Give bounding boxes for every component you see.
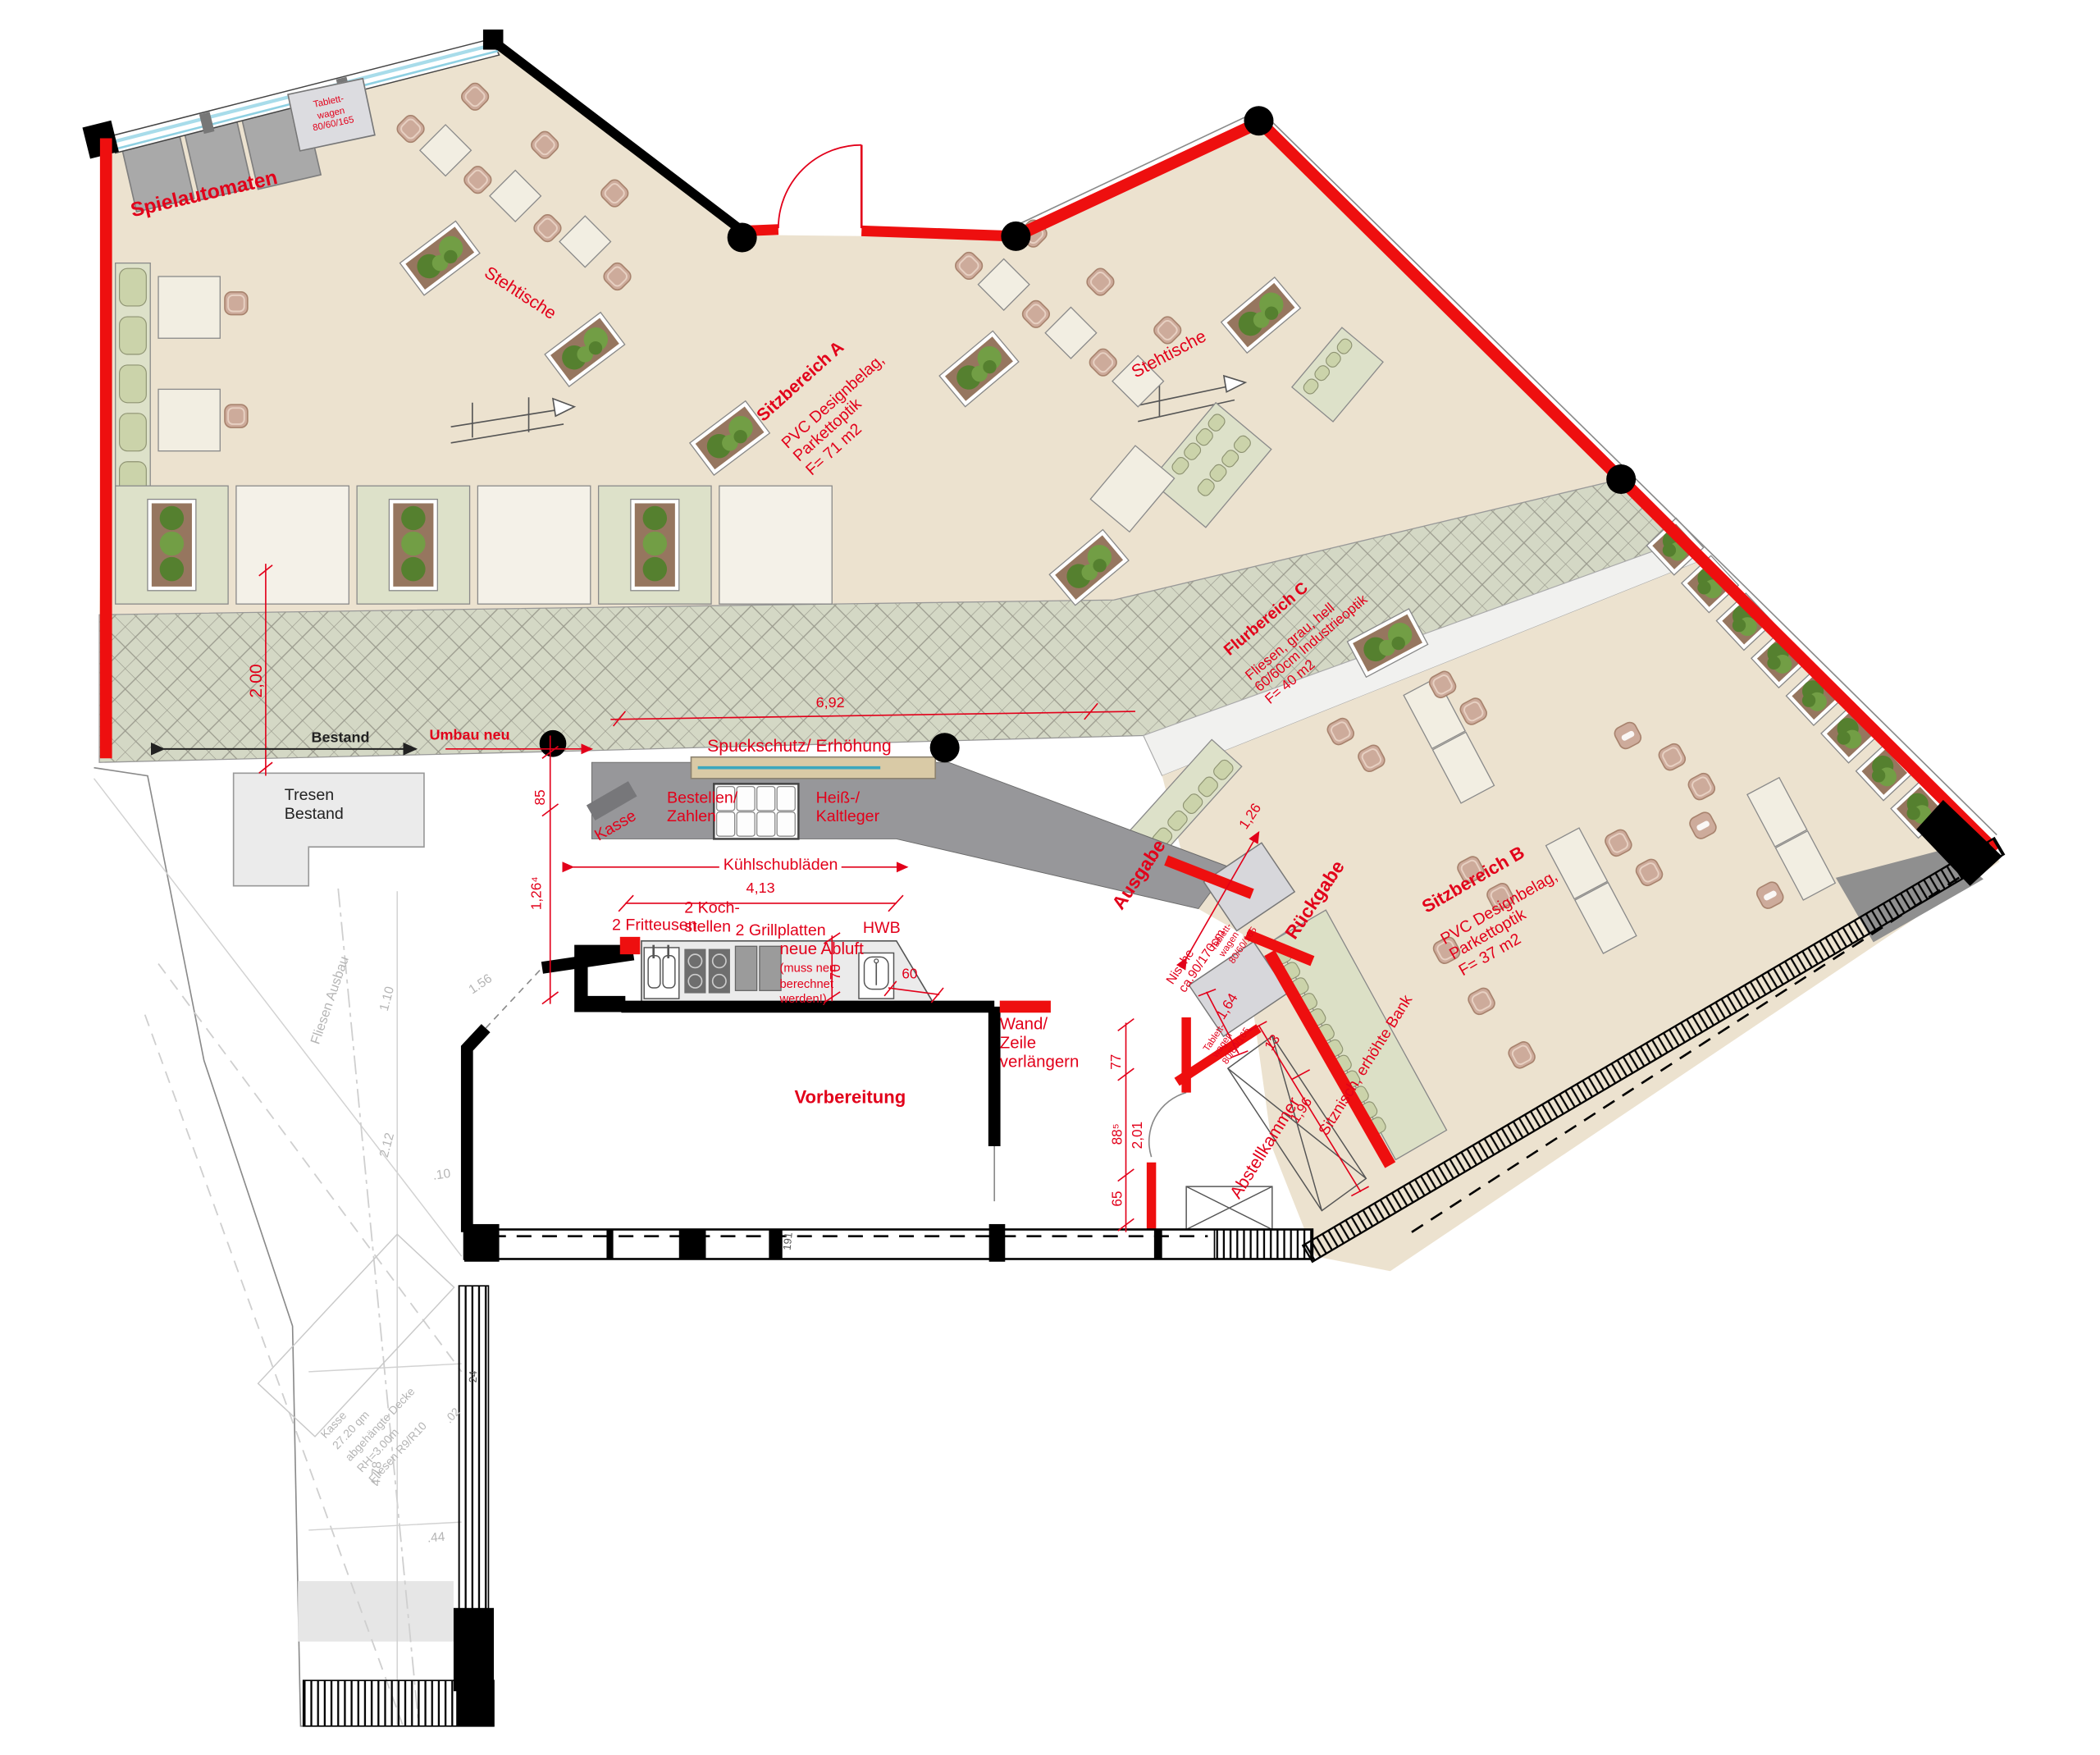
bestand-24: 24 <box>467 1370 479 1383</box>
label-vorbereitung: Vorbereitung <box>794 1087 906 1108</box>
label-spuckschutz: Spuckschutz/ Erhöhung <box>707 737 892 756</box>
dim-1-26-4: 1,26⁴ <box>530 876 546 910</box>
dim-4-13: 4,13 <box>746 880 775 897</box>
label-hwb: HWB <box>863 920 901 938</box>
label-tablettwagen-1: Tablett- wagen 80/60/165 <box>308 94 355 135</box>
label-heiss-kaltleger: Heiß-/ Kaltleger <box>816 789 880 825</box>
dim-2-01: 2,01 <box>1131 1122 1147 1149</box>
label-grillplatten: 2 Grillplatten <box>735 922 825 940</box>
floor-plan-page: Spielautomaten Tablett- wagen 80/60/165 … <box>0 0 2100 1755</box>
bestand-gray-zone <box>298 1581 454 1642</box>
label-neue-abluft: neue Abluft <box>779 939 863 958</box>
label-tresen-bestand: Tresen Bestand <box>285 787 344 823</box>
bestand-area <box>94 768 494 1726</box>
bestand-0-44: .44 <box>427 1531 445 1547</box>
dim-6-92: 6,92 <box>816 695 845 711</box>
fritteusen-unit <box>644 945 679 999</box>
label-bestand: Bestand <box>312 730 370 747</box>
dim-77: 77 <box>1110 1054 1125 1070</box>
bestand-191: 191 <box>781 1232 795 1250</box>
bottom-wall <box>464 1224 1312 1262</box>
label-umbau-neu: Umbau neu <box>429 728 509 744</box>
dim-65: 65 <box>1112 1191 1127 1207</box>
floor-plan-drawing <box>0 0 2100 1755</box>
dim-88-5: 88⁵ <box>1112 1123 1127 1145</box>
dim-85: 85 <box>534 789 550 805</box>
bestand-0-10: .10 <box>432 1168 452 1184</box>
dim-2-00: 2,00 <box>247 664 267 697</box>
dim-70: 70 <box>829 964 845 980</box>
label-bestellen-zahlen: Bestellen/ Zahlen <box>667 789 737 825</box>
label-kochstellen: 2 Koch- stellen <box>684 899 740 935</box>
entry-door <box>778 145 861 228</box>
label-kuehlschubladen: Kühlschubläden <box>719 857 842 875</box>
dim-60: 60 <box>902 967 917 983</box>
label-wand-zeile: Wand/ Zeile verlängern <box>1000 1015 1080 1072</box>
